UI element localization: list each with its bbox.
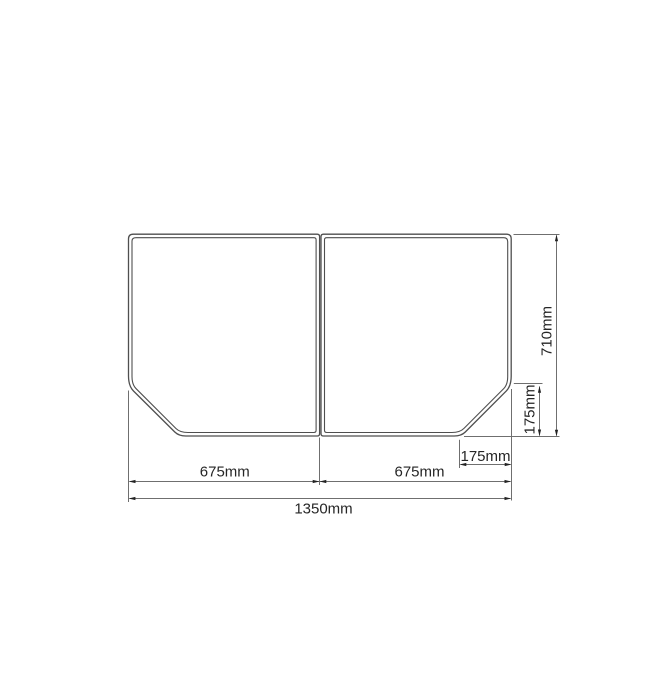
svg-text:675mm: 675mm — [200, 463, 250, 480]
svg-text:175mm: 175mm — [521, 384, 538, 434]
svg-text:675mm: 675mm — [394, 463, 444, 480]
svg-text:710mm: 710mm — [538, 306, 555, 356]
svg-text:175mm: 175mm — [460, 448, 510, 465]
svg-text:1350mm: 1350mm — [294, 501, 352, 518]
